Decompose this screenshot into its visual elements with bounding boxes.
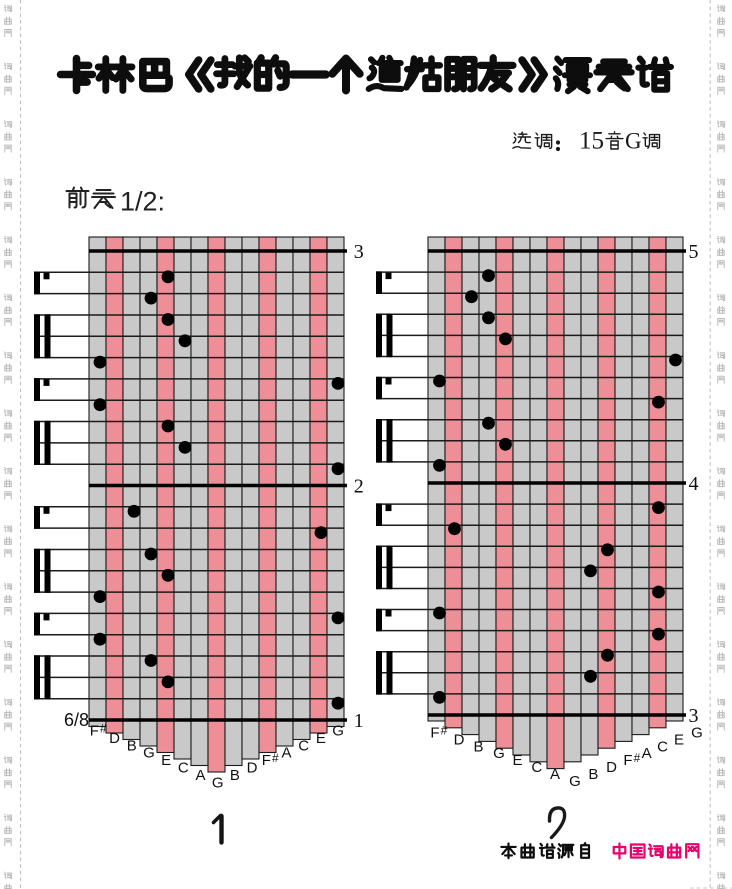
svg-text:B: B (588, 766, 598, 783)
svg-text:F: F (90, 723, 99, 740)
svg-text:C: C (657, 738, 668, 755)
svg-text:G: G (691, 725, 703, 742)
svg-text:#: # (100, 722, 107, 736)
svg-text:C: C (531, 759, 542, 776)
svg-text:G: G (625, 129, 642, 154)
svg-text:C: C (298, 737, 309, 754)
svg-text:A: A (195, 767, 205, 784)
svg-text:3: 3 (354, 241, 364, 263)
svg-text:B: B (230, 767, 240, 784)
svg-text:G: G (212, 774, 224, 791)
svg-text:A: A (281, 745, 291, 762)
svg-text:B: B (473, 738, 483, 755)
svg-text:E: E (674, 731, 684, 748)
svg-text:D: D (247, 760, 258, 777)
svg-text:F: F (430, 725, 439, 742)
svg-text:G: G (569, 773, 581, 790)
svg-text:F: F (623, 752, 632, 769)
svg-text:G: G (332, 723, 344, 740)
svg-text:C: C (178, 760, 189, 777)
svg-text:E: E (161, 752, 171, 769)
svg-text:G: G (493, 745, 505, 762)
svg-text:#: # (634, 751, 641, 765)
svg-text:E: E (512, 752, 522, 769)
svg-text:2: 2 (354, 476, 364, 498)
svg-text:G: G (143, 745, 155, 762)
svg-text:D: D (109, 730, 120, 747)
svg-text:B: B (127, 737, 137, 754)
svg-text:1/2:: 1/2: (120, 187, 165, 217)
svg-text:D: D (606, 759, 617, 776)
svg-text:15: 15 (579, 128, 604, 155)
svg-text:F: F (262, 752, 271, 769)
svg-text:#: # (441, 724, 448, 738)
svg-text:A: A (642, 745, 652, 762)
svg-text:#: # (272, 751, 279, 765)
svg-text:E: E (316, 730, 326, 747)
svg-text:5: 5 (689, 241, 699, 263)
svg-text:D: D (454, 731, 465, 748)
svg-text:4: 4 (689, 473, 699, 495)
svg-text:A: A (550, 766, 560, 783)
svg-text:6/8: 6/8 (64, 710, 89, 730)
svg-text:1: 1 (354, 710, 364, 732)
